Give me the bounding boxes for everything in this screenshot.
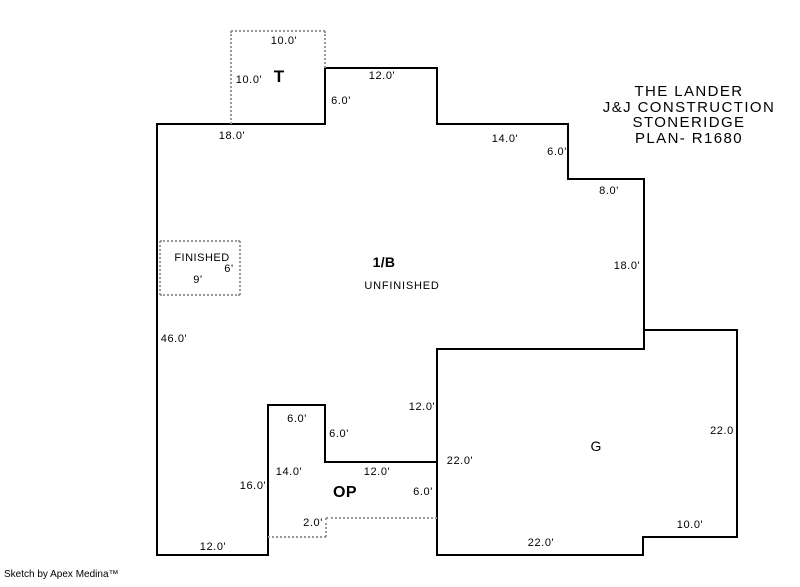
dimension-label: 18.0' [614,260,641,272]
area-label-1b: 1/B [373,254,396,270]
dotted-boundary-segment [326,517,437,519]
dimension-label: 14.0' [492,133,519,145]
dimension-label: 6.0' [331,95,351,107]
wall-segment [436,554,644,556]
dimension-label: 12.0' [364,466,391,478]
dimension-label: 22.0' [528,537,555,549]
dimension-label: 16.0' [240,480,267,492]
title-line: STONERIDGE [603,115,775,131]
dotted-boundary-segment [325,518,327,537]
wall-segment [156,554,269,556]
dimension-label: 10.0' [236,74,263,86]
wall-segment [156,123,326,125]
wall-segment [436,348,438,556]
dotted-boundary-segment [159,241,161,295]
dimension-label: 6' [224,263,233,275]
dimension-label: 6.0' [413,486,433,498]
floorplan-canvas: THE LANDERJ&J CONSTRUCTIONSTONERIDGEPLAN… [0,0,800,587]
dotted-boundary-segment [231,30,325,32]
plan-title-block: THE LANDERJ&J CONSTRUCTIONSTONERIDGEPLAN… [603,84,775,146]
dimension-label: 2.0' [303,517,323,529]
area-label-g: G [591,438,602,454]
dimension-label: 18.0' [219,130,246,142]
dimension-label: 8.0' [599,185,619,197]
dimension-label: 12.0' [369,70,396,82]
wall-segment [436,123,569,125]
title-line: J&J CONSTRUCTION [603,100,775,116]
area-label-unfinished: UNFINISHED [364,280,439,292]
dimension-label: 6.0' [329,428,349,440]
dotted-boundary-segment [268,536,326,538]
dotted-boundary-segment [239,241,241,295]
dotted-boundary-segment [230,31,232,124]
area-label-finished: FINISHED [174,252,229,264]
wall-segment [324,461,438,463]
wall-segment [324,67,326,125]
dimension-label: 46.0' [161,333,188,345]
wall-segment [567,123,569,180]
wall-segment [324,67,438,69]
dimension-label: 6.0' [287,413,307,425]
dotted-boundary-segment [160,240,240,242]
sketch-credit: Sketch by Apex Medina™ [4,569,119,580]
wall-segment [736,329,738,538]
wall-segment [567,178,645,180]
wall-segment [642,536,738,538]
dotted-boundary-segment [160,294,240,296]
dimension-label: 10.0' [677,519,704,531]
wall-segment [267,404,269,556]
dimension-label: 10.0' [271,35,298,47]
wall-segment [642,536,644,556]
area-label-op: OP [333,484,357,502]
dimension-label: 12.0' [409,401,436,413]
dimension-label: 22.0' [447,455,474,467]
dimension-label: 22.0 [710,425,734,437]
dimension-label: 9' [193,274,202,286]
wall-segment [436,67,438,125]
area-label-t: T [274,67,284,87]
wall-segment [267,404,326,406]
dimension-label: 6.0' [547,146,567,158]
title-line: PLAN- R1680 [603,131,775,147]
wall-segment [156,123,158,556]
dimension-label: 14.0' [276,466,303,478]
dotted-boundary-segment [324,31,326,68]
wall-segment [324,404,326,463]
wall-segment [643,329,738,331]
wall-segment [643,178,645,350]
title-line: THE LANDER [603,84,775,100]
wall-segment [436,348,645,350]
dimension-label: 12.0' [200,541,227,553]
